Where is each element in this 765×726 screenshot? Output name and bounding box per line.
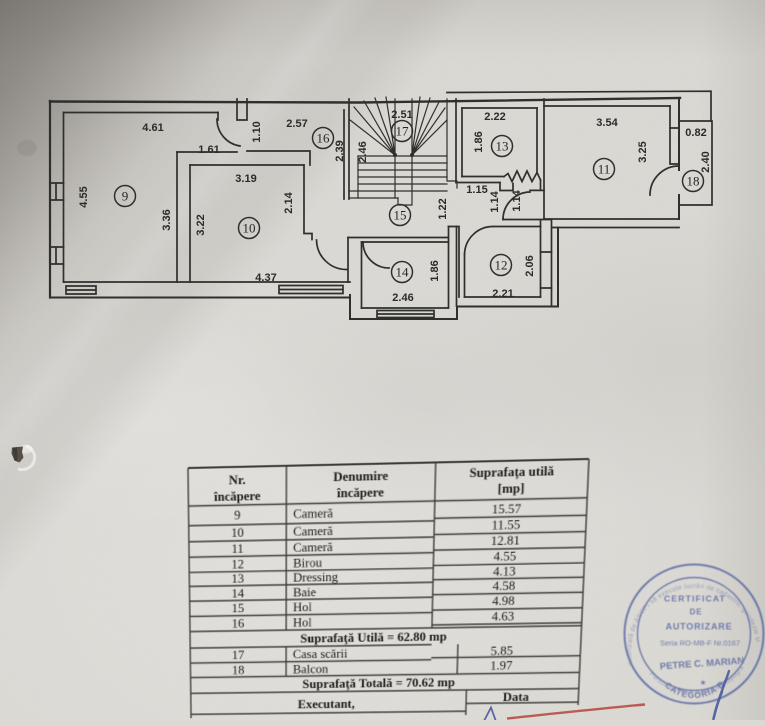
svg-text:AUTORIZARE: AUTORIZARE [666,622,733,632]
svg-text:Persoană fizică autorizată top: Persoană fizică autorizată topografie [0,0,745,696]
svg-text:DE: DE [690,608,703,617]
svg-text:PETRE C. MARIAN: PETRE C. MARIAN [659,656,744,673]
svg-text:CERTIFICAT: CERTIFICAT [664,594,726,604]
svg-text:Seria RO-MB-F Nr.0167: Seria RO-MB-F Nr.0167 [660,639,740,648]
svg-text:★: ★ [700,678,707,687]
